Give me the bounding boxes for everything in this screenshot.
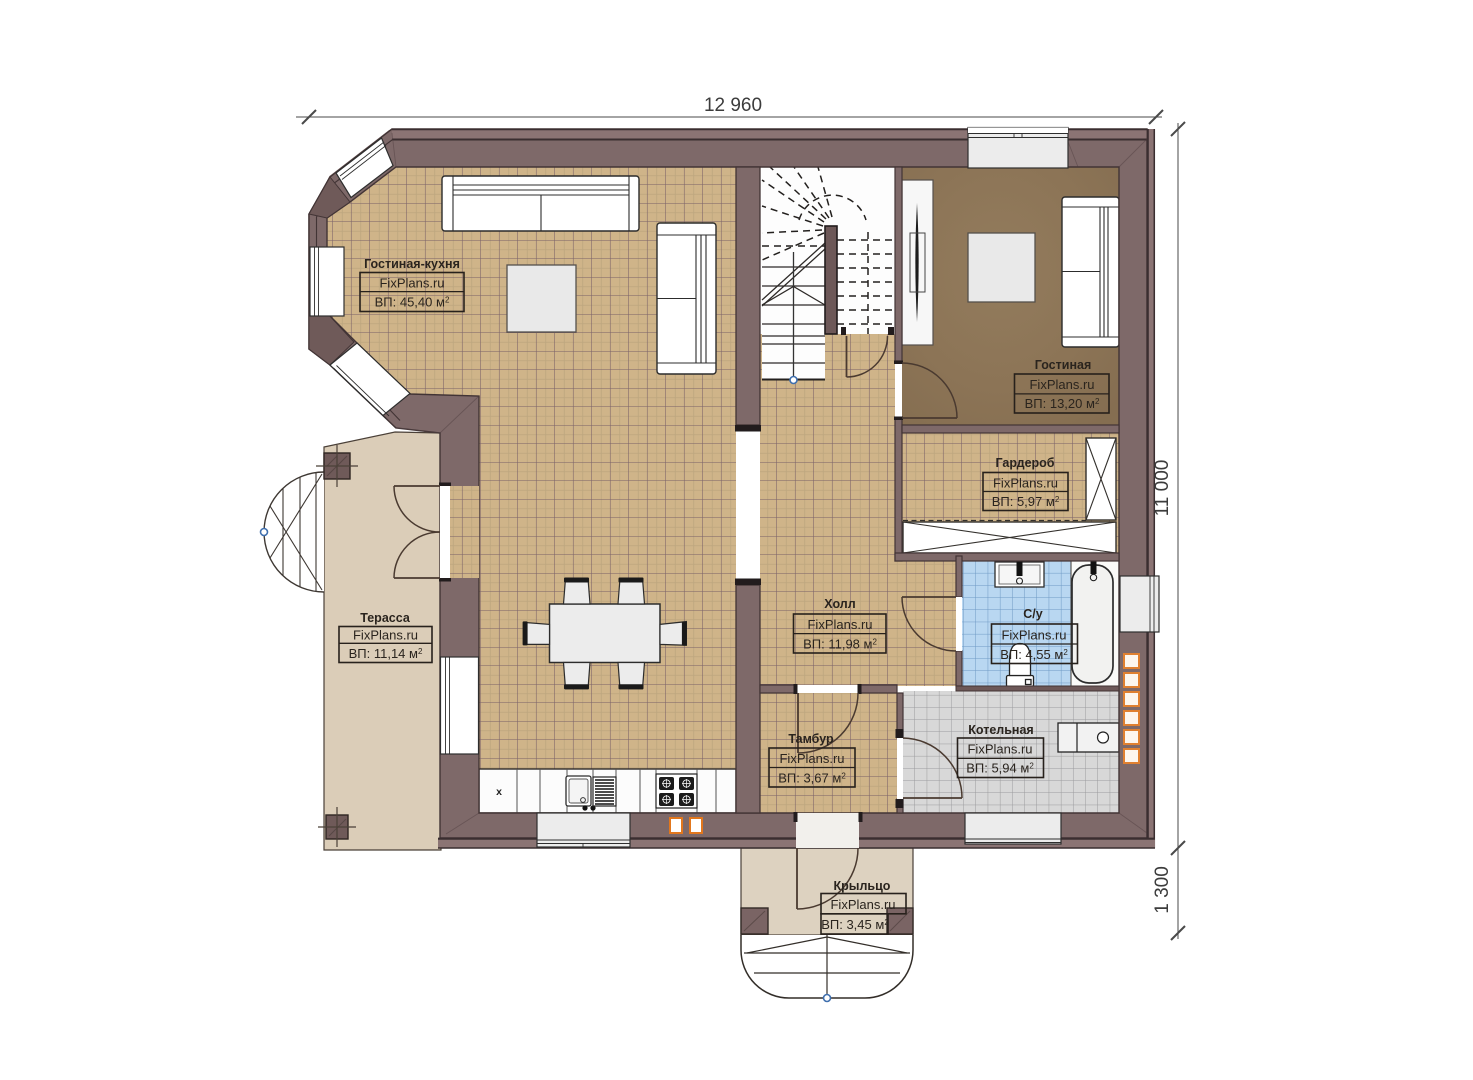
svg-text:Гостиная: Гостиная: [1035, 358, 1092, 372]
svg-text:FixPlans.ru: FixPlans.ru: [1029, 377, 1094, 392]
svg-text:ВП: 4,55 м2: ВП: 4,55 м2: [1000, 647, 1068, 662]
svg-text:FixPlans.ru: FixPlans.ru: [779, 751, 844, 766]
svg-text:ВП: 11,98 м2: ВП: 11,98 м2: [803, 637, 877, 652]
svg-text:Тамбур: Тамбур: [788, 732, 834, 746]
svg-text:FixPlans.ru: FixPlans.ru: [353, 628, 418, 643]
svg-text:Гардероб: Гардероб: [995, 456, 1054, 470]
svg-text:FixPlans.ru: FixPlans.ru: [993, 476, 1058, 491]
svg-text:FixPlans.ru: FixPlans.ru: [830, 897, 895, 912]
svg-text:FixPlans.ru: FixPlans.ru: [379, 276, 444, 291]
svg-text:ВП: 5,94 м2: ВП: 5,94 м2: [966, 761, 1034, 776]
svg-text:FixPlans.ru: FixPlans.ru: [1001, 628, 1066, 643]
svg-text:FixPlans.ru: FixPlans.ru: [807, 617, 872, 632]
svg-text:FixPlans.ru: FixPlans.ru: [967, 742, 1032, 757]
svg-text:С/у: С/у: [1023, 607, 1043, 621]
svg-text:ВП: 5,97 м2: ВП: 5,97 м2: [992, 494, 1060, 509]
svg-text:Холл: Холл: [824, 597, 855, 611]
svg-text:12 960: 12 960: [704, 95, 762, 116]
svg-text:Терасса: Терасса: [360, 611, 411, 625]
svg-text:11 000: 11 000: [1152, 460, 1173, 517]
svg-text:ВП: 3,67 м2: ВП: 3,67 м2: [778, 771, 846, 786]
svg-text:x: x: [496, 786, 502, 798]
svg-text:Гостиная-кухня: Гостиная-кухня: [364, 257, 460, 271]
svg-text:Крыльцо: Крыльцо: [834, 879, 891, 893]
svg-text:ВП: 13,20 м2: ВП: 13,20 м2: [1025, 396, 1100, 411]
svg-text:ВП: 45,40 м2: ВП: 45,40 м2: [375, 295, 450, 310]
svg-text:1 300: 1 300: [1152, 866, 1173, 914]
svg-text:ВП: 3,45 м2: ВП: 3,45 м2: [821, 917, 889, 932]
svg-text:ВП: 11,14 м2: ВП: 11,14 м2: [349, 646, 423, 661]
svg-text:Котельная: Котельная: [968, 723, 1033, 737]
